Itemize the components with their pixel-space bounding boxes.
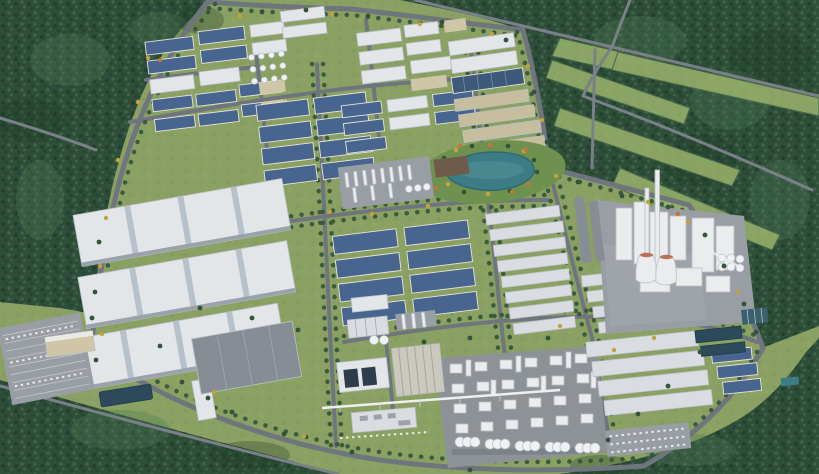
ribbed-halls [347,316,389,338]
cooling-tower [656,256,676,285]
striped-workshop [392,344,445,397]
aeration-pools [741,307,768,325]
scene-canvas [0,0,819,474]
chimney-tall [655,170,660,268]
industrial-park-aerial-render [0,0,819,474]
cooling-tower [636,254,656,283]
hall-with-dark-panels [337,357,390,392]
storage-tank [370,336,379,345]
west-parking-lot [0,312,95,405]
storage-tank [380,336,389,345]
chemical-plant [434,346,608,468]
